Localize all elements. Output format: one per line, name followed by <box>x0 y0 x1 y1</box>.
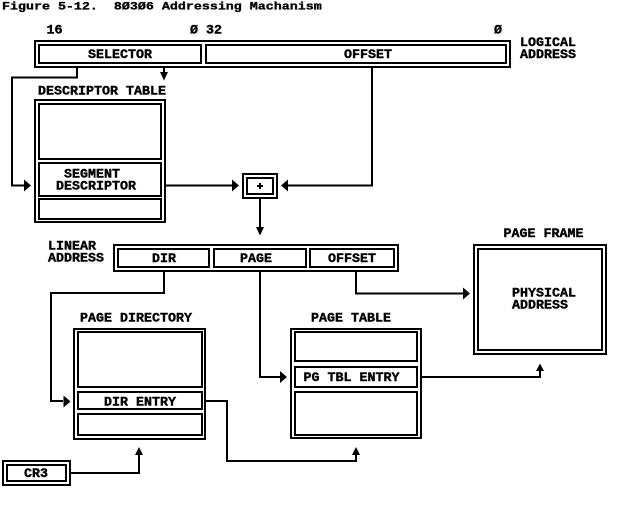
svg-text:CR3: CR3 <box>24 467 48 482</box>
svg-text:OFFSET: OFFSET <box>344 48 392 63</box>
svg-text:DESCRIPTOR TABLE: DESCRIPTOR TABLE <box>38 84 166 99</box>
svg-text:SELECTOR: SELECTOR <box>88 48 152 63</box>
svg-text:PAGE FRAME: PAGE FRAME <box>504 227 584 242</box>
svg-text:ADDRESS: ADDRESS <box>520 48 576 63</box>
svg-text:PAGE: PAGE <box>240 252 272 267</box>
svg-text:OFFSET: OFFSET <box>328 252 376 267</box>
svg-text:Ø 32: Ø 32 <box>190 24 222 39</box>
svg-text:16: 16 <box>47 24 63 39</box>
svg-text:DIR: DIR <box>152 252 176 267</box>
svg-text:DIR ENTRY: DIR ENTRY <box>104 395 176 410</box>
svg-text:PAGE DIRECTORY: PAGE DIRECTORY <box>80 312 192 327</box>
svg-text:DESCRIPTOR: DESCRIPTOR <box>56 180 136 195</box>
svg-text:PG TBL ENTRY: PG TBL ENTRY <box>304 371 400 386</box>
svg-text:PAGE TABLE: PAGE TABLE <box>311 312 391 327</box>
svg-text:ADDRESS: ADDRESS <box>48 251 104 266</box>
svg-text:ADDRESS: ADDRESS <box>512 299 568 314</box>
svg-text:Ø: Ø <box>494 24 502 39</box>
svg-text:Figure 5-12. 8Ø3Ø6 Addressing: Figure 5-12. 8Ø3Ø6 Addressing Machanism <box>2 1 322 13</box>
